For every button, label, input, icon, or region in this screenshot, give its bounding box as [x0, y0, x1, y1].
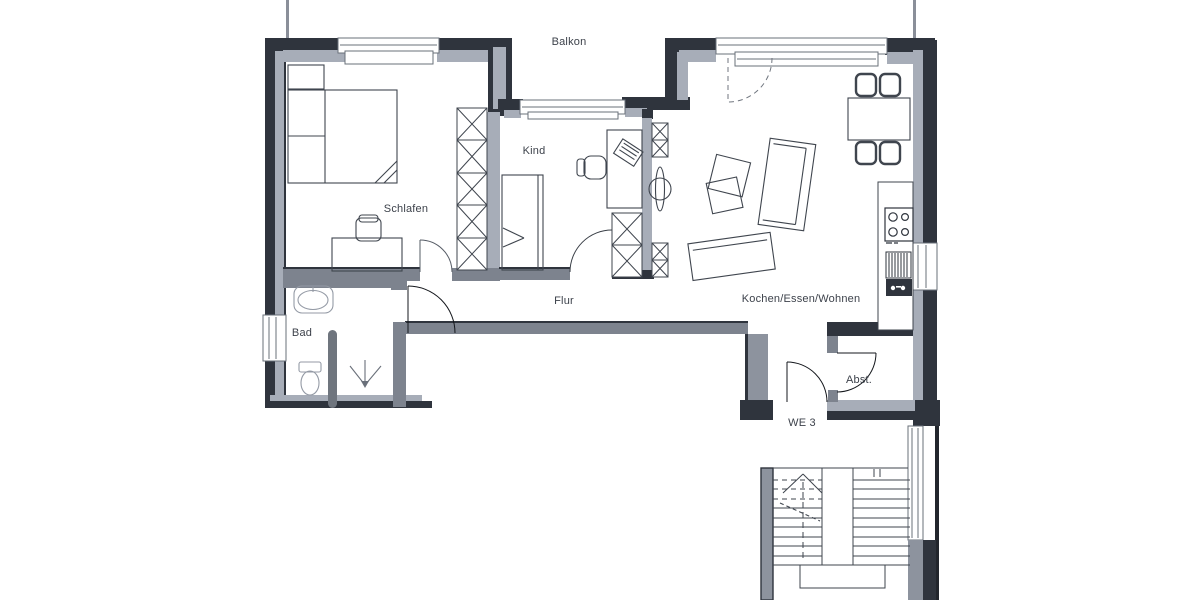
double-bed-icon	[288, 90, 397, 183]
label-bathroom: Bad	[292, 327, 312, 339]
entrance-door	[787, 362, 827, 402]
label-storage: Abst.	[846, 374, 872, 386]
bedroom-desk-icon	[332, 215, 402, 271]
label-bedroom: Schlafen	[384, 203, 428, 215]
floorplan-drawing	[0, 0, 1200, 600]
kitchen-window	[911, 243, 937, 290]
chair-icon	[856, 142, 876, 164]
lounger-icon	[688, 232, 775, 280]
shower-partition	[328, 330, 337, 408]
bedroom-door	[420, 240, 452, 272]
sofa-icon	[758, 138, 816, 231]
kitchen	[878, 182, 913, 330]
side-table-icon	[706, 154, 750, 213]
tv-icon	[649, 167, 671, 211]
toilet-icon	[299, 362, 321, 395]
chair-icon	[880, 142, 900, 164]
label-hallway: Flur	[554, 295, 574, 307]
label-child-room: Kind	[523, 145, 546, 157]
chair-icon	[880, 74, 900, 96]
sink-icon	[886, 279, 912, 296]
label-living: Kochen/Essen/Wohnen	[742, 293, 861, 305]
bathroom-window	[263, 315, 286, 361]
label-unit: WE 3	[788, 417, 816, 429]
floorplan-canvas: Balkon Kind Schlafen Bad Flur Kochen/Ess…	[0, 0, 1200, 600]
nightstand-icon	[288, 65, 324, 89]
shower-icon	[350, 360, 381, 388]
chair-icon	[856, 74, 876, 96]
storage-door	[837, 353, 876, 392]
bedroom-wardrobe-icon	[457, 108, 487, 270]
exterior-walls	[265, 38, 940, 426]
stairwell-window	[908, 426, 923, 540]
interior-walls	[283, 109, 913, 407]
bathroom-fixtures	[294, 286, 381, 408]
child-room-door	[570, 230, 612, 272]
child-bed-icon	[502, 175, 543, 270]
dining-table-icon	[848, 98, 910, 140]
bedroom-furniture	[288, 65, 402, 271]
label-balcony: Balkon	[552, 36, 587, 48]
washbasin-icon	[294, 286, 333, 313]
stair-direction-arrow-icon	[783, 474, 822, 558]
child-desk-icon	[577, 130, 643, 208]
child-wardrobe-icon	[612, 213, 642, 277]
laptop-icon	[614, 139, 643, 166]
windows	[263, 38, 937, 540]
dining-set-icon	[848, 74, 910, 164]
